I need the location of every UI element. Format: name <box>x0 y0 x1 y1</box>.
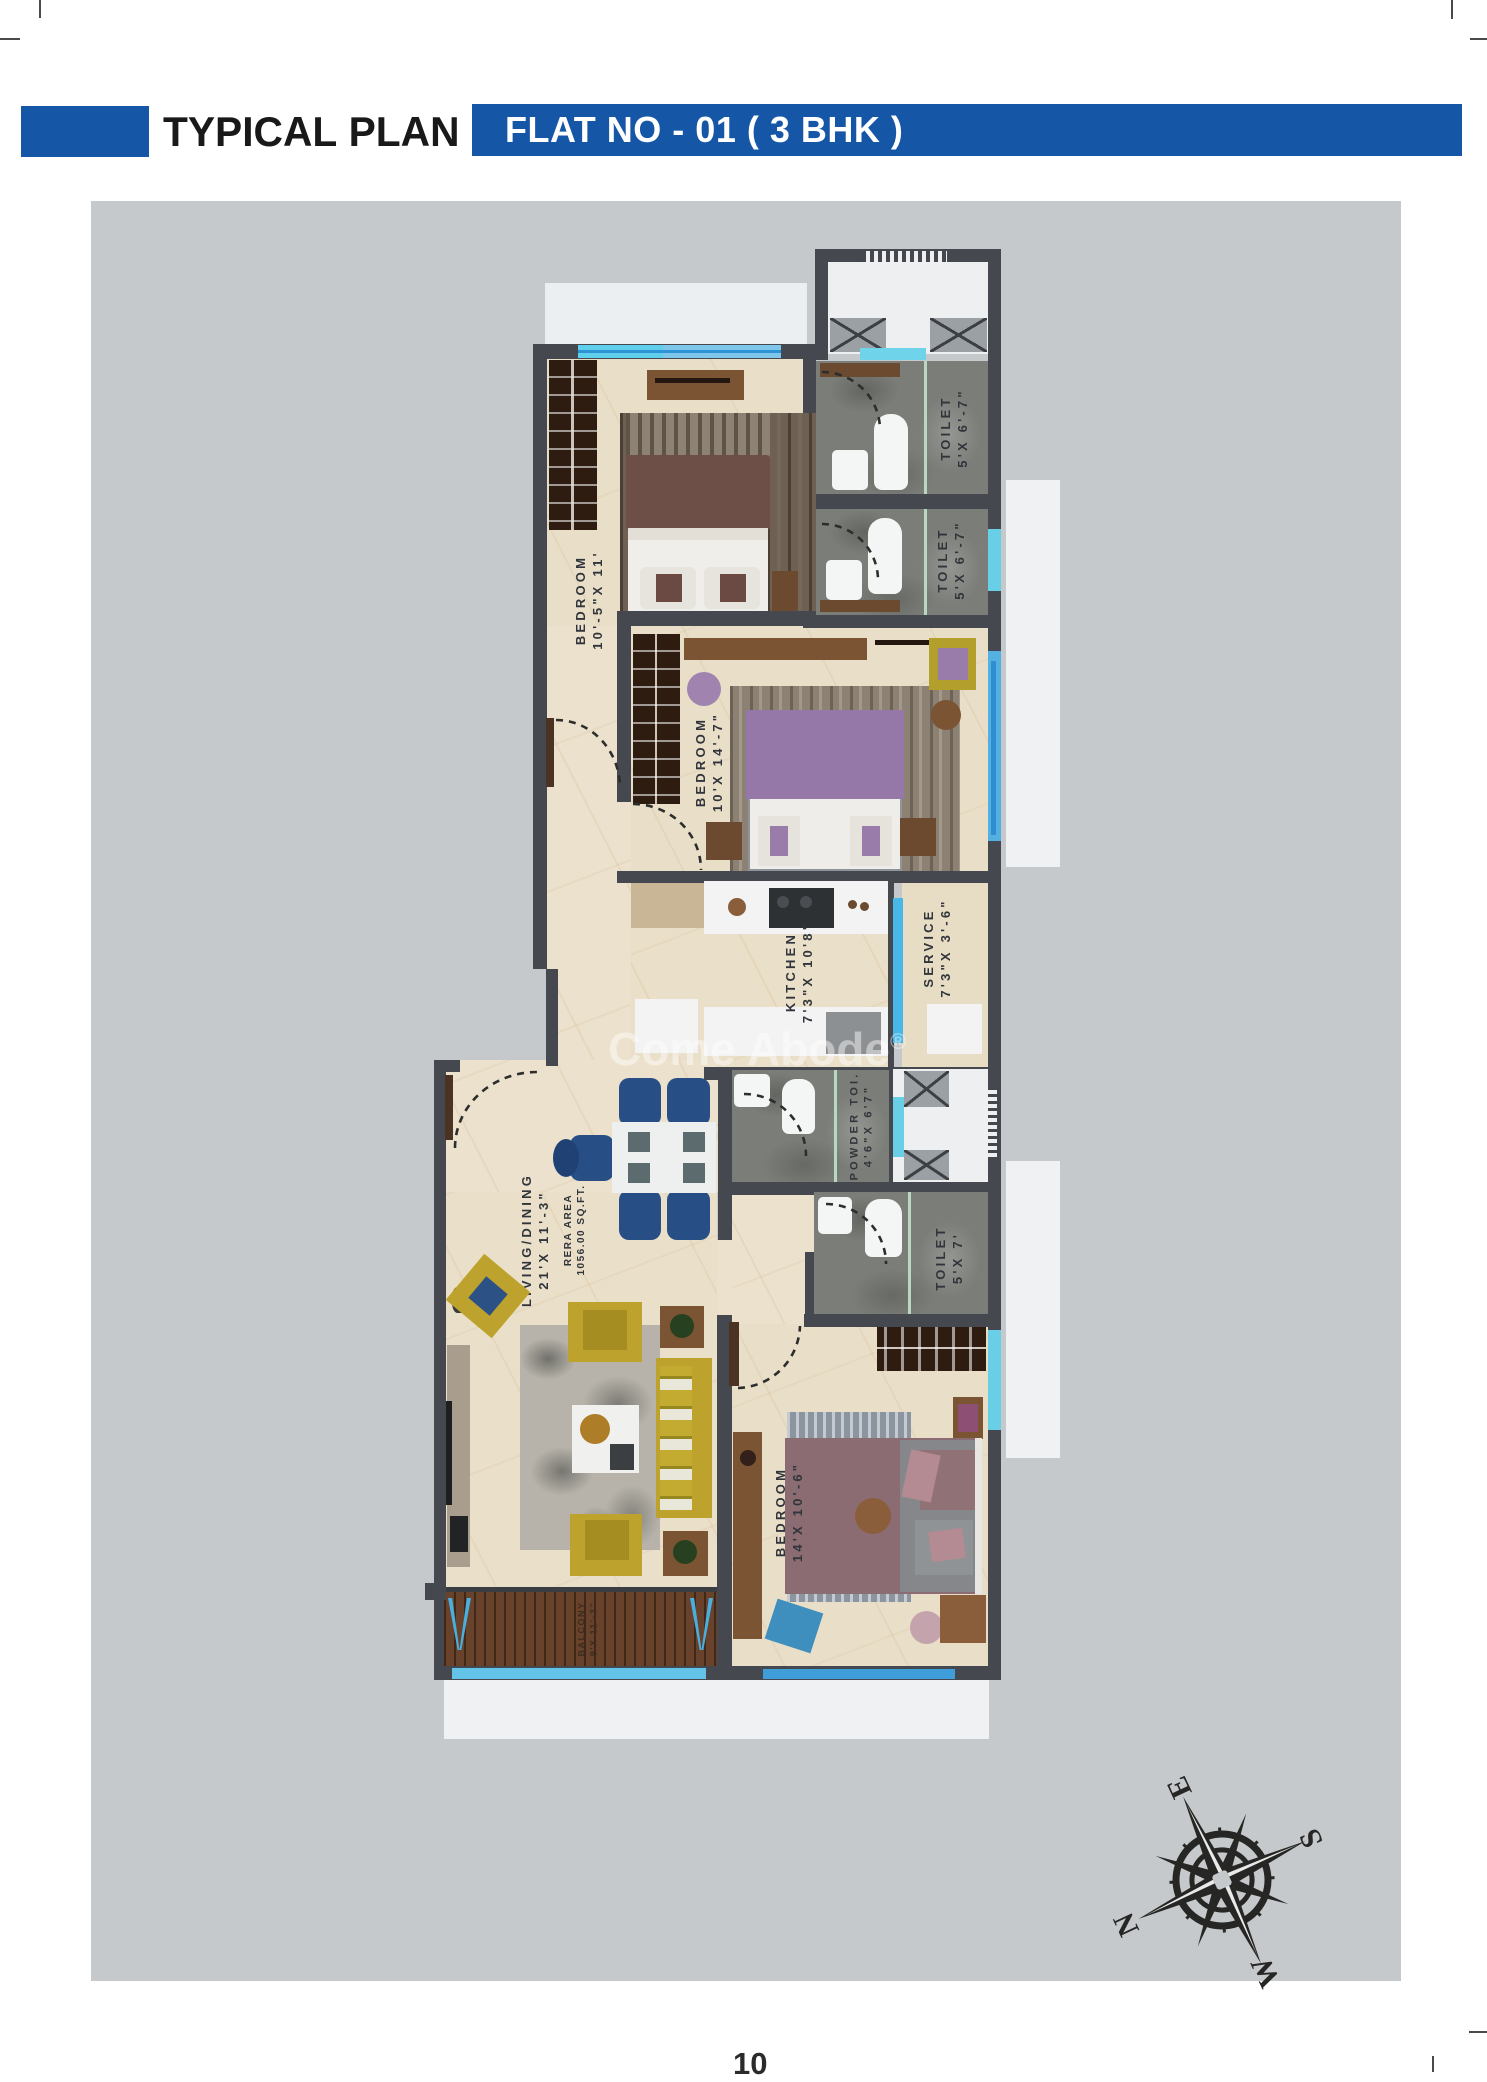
svg-text:S: S <box>1293 1824 1330 1853</box>
svg-text:E: E <box>1160 1771 1198 1803</box>
svg-text:N: N <box>1112 1907 1146 1941</box>
svg-text:W: W <box>1244 1952 1287 1990</box>
